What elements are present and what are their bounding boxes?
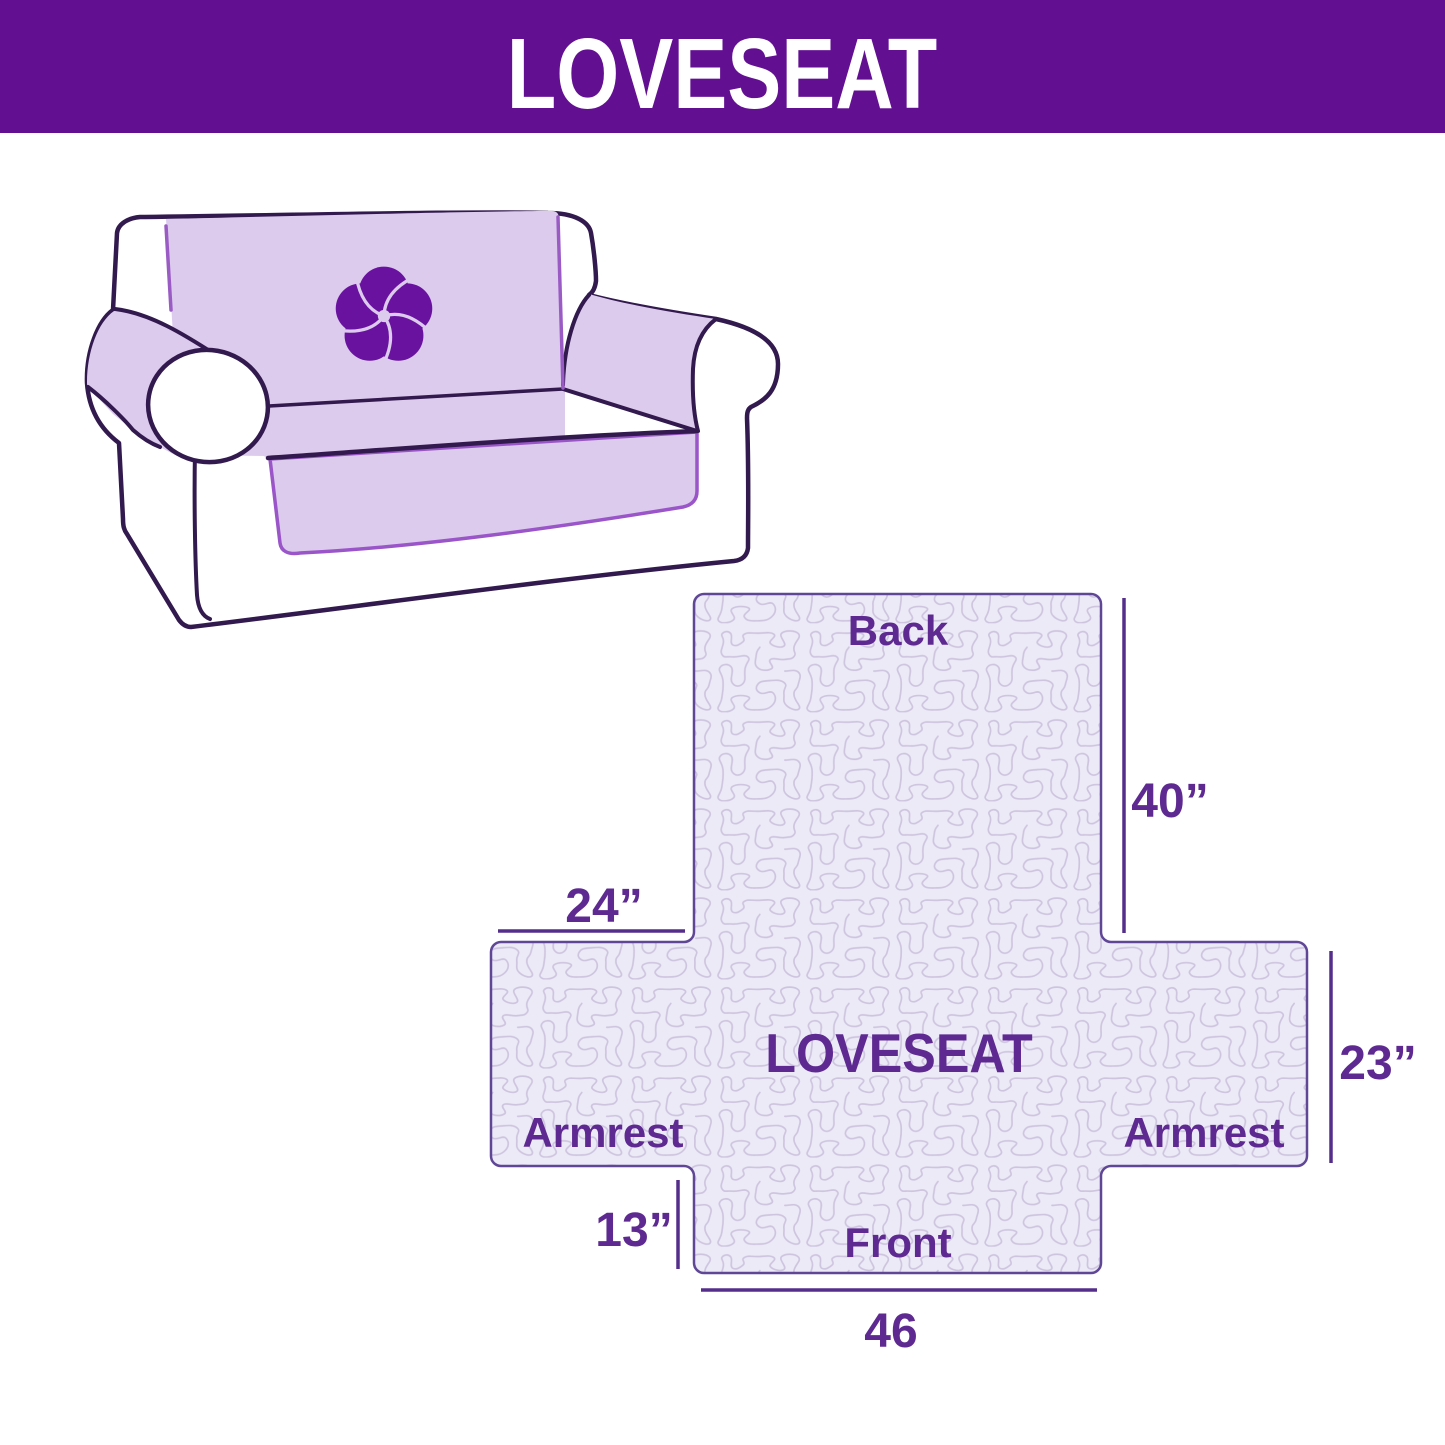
svg-text:40”: 40”	[1131, 775, 1208, 828]
svg-text:Front: Front	[844, 1219, 951, 1266]
svg-text:Back: Back	[848, 607, 949, 654]
svg-text:23”: 23”	[1339, 1037, 1416, 1090]
svg-text:Armrest: Armrest	[1123, 1109, 1284, 1156]
svg-text:13”: 13”	[595, 1204, 672, 1257]
svg-text:Armrest: Armrest	[522, 1109, 683, 1156]
svg-text:LOVESEAT: LOVESEAT	[765, 1023, 1032, 1085]
svg-text:46: 46	[864, 1305, 917, 1358]
svg-text:LOVESEAT: LOVESEAT	[507, 19, 937, 130]
svg-text:24”: 24”	[565, 880, 642, 933]
